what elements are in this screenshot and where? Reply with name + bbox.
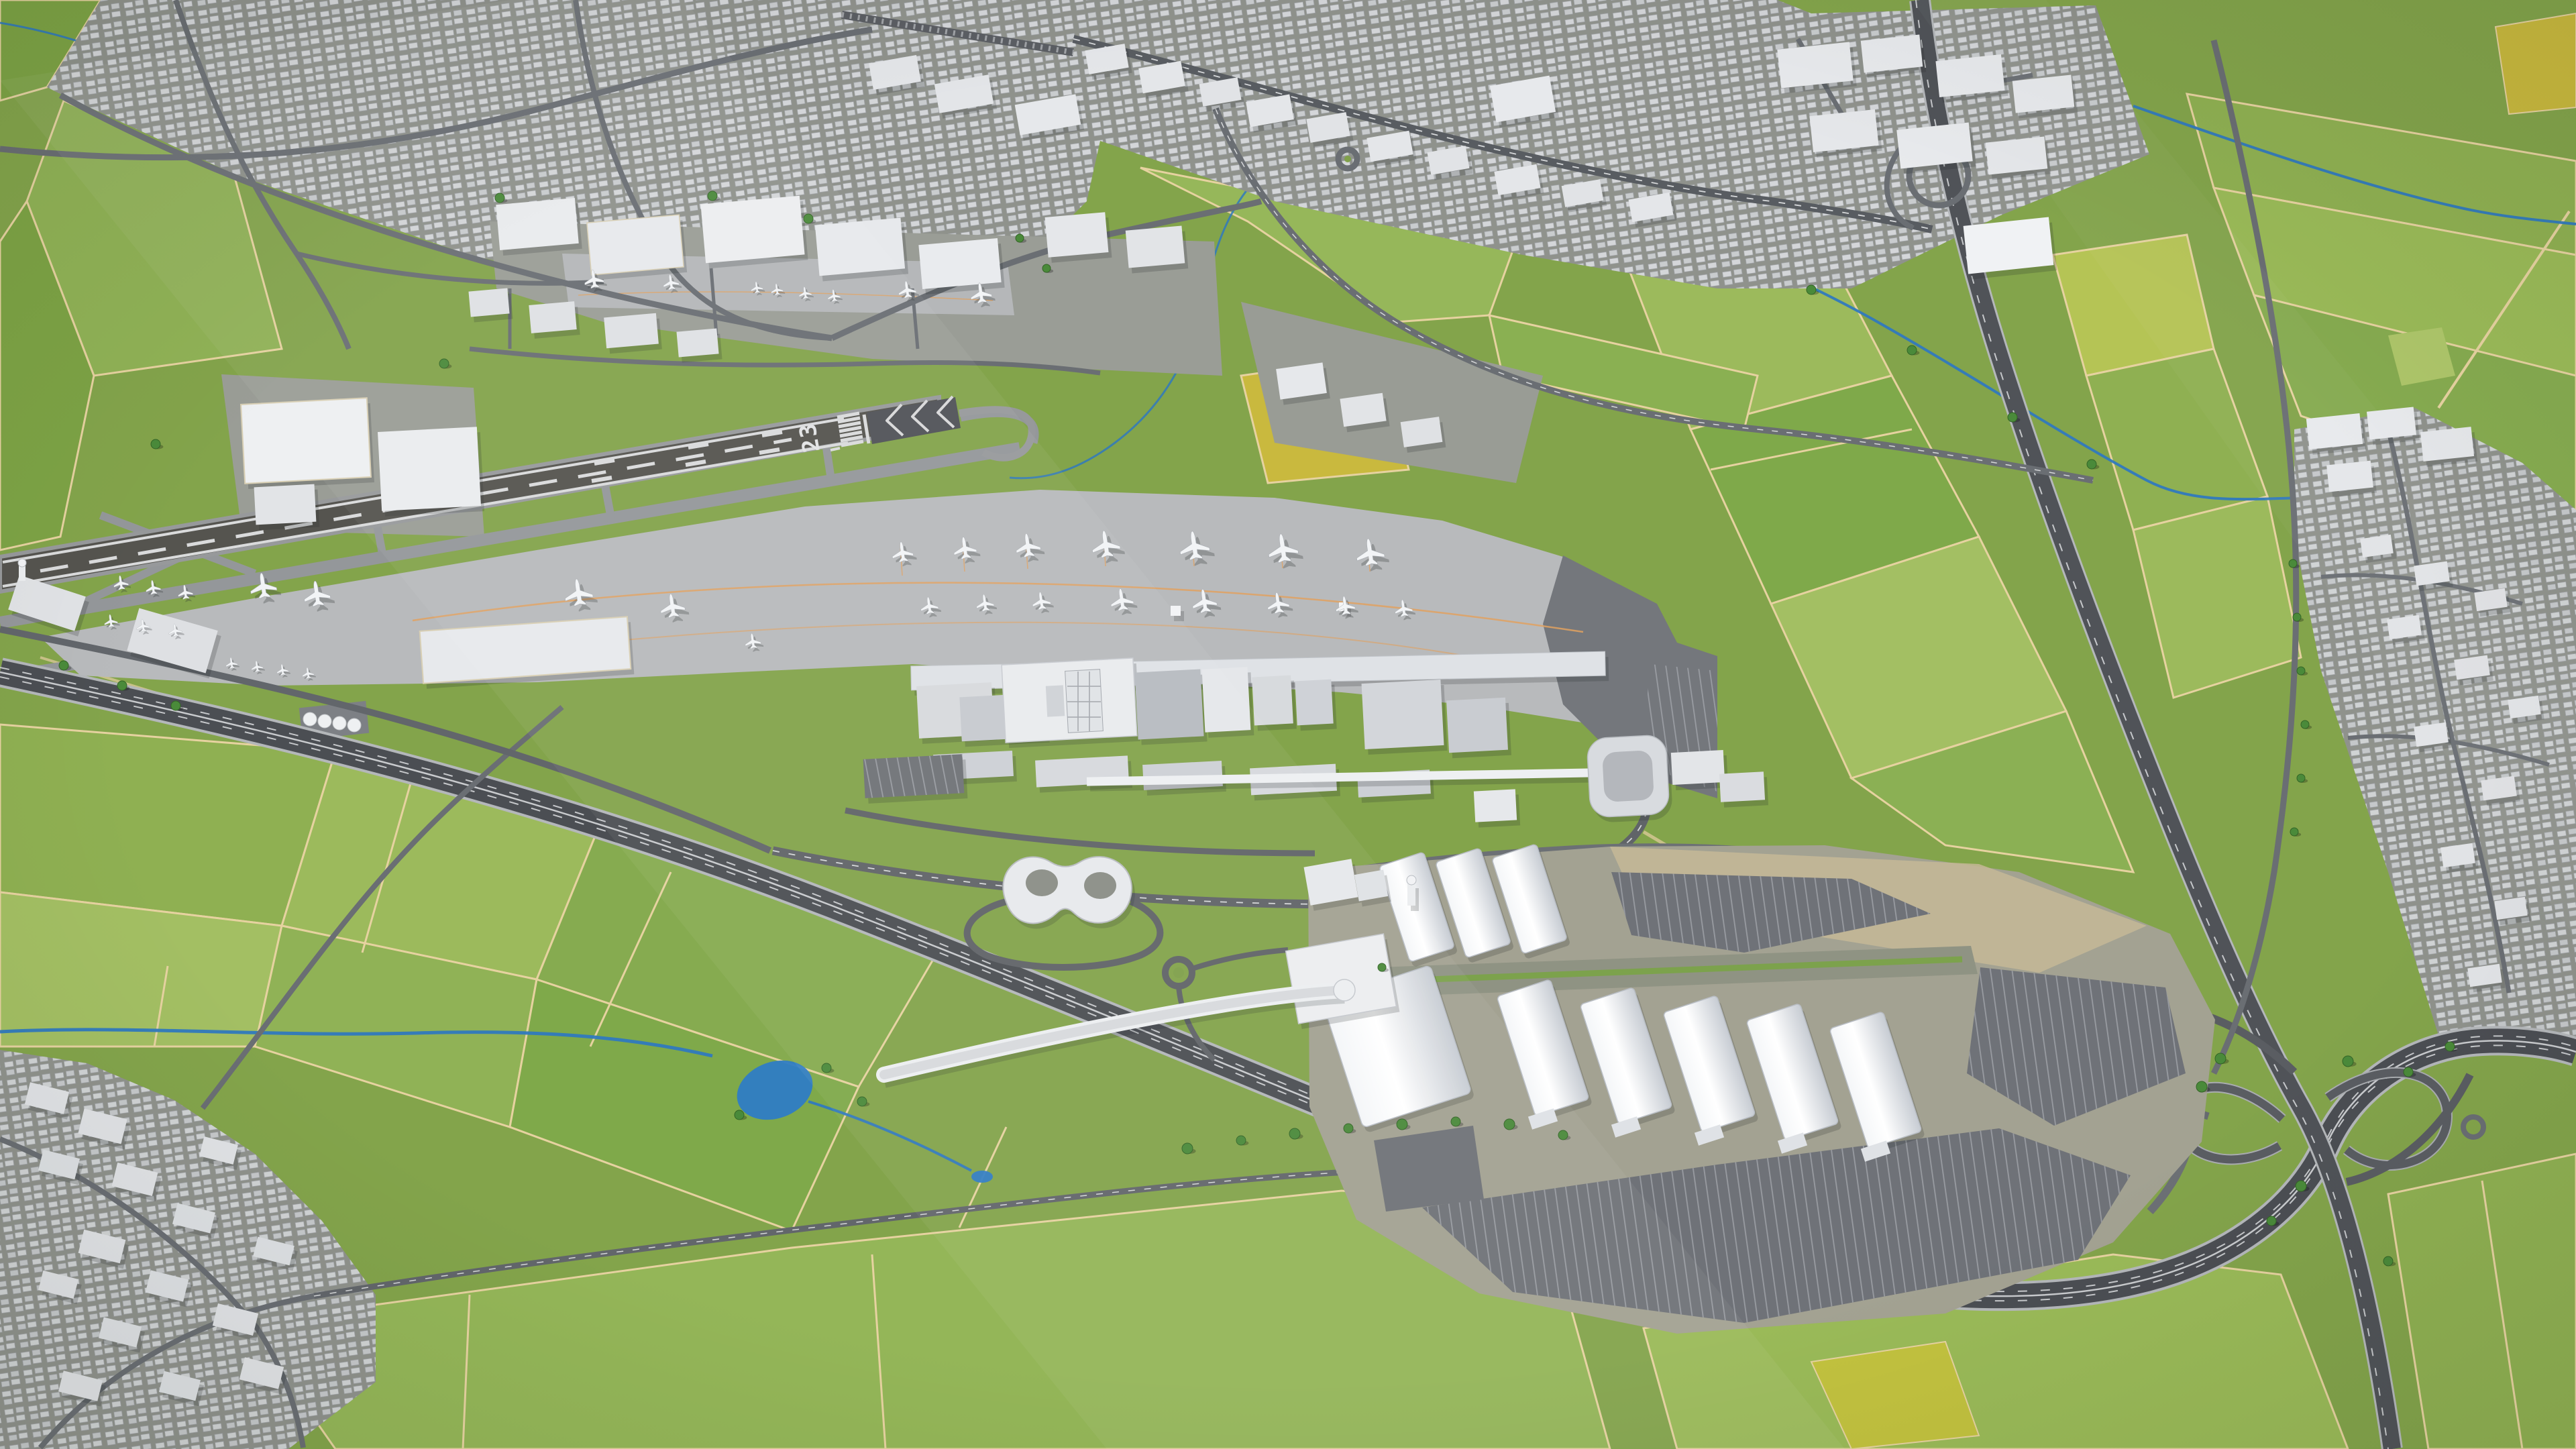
aerial-3d-map: 23 (0, 0, 2576, 1449)
vignette (0, 0, 2576, 1449)
scene-svg: 23 (0, 0, 2576, 1449)
lighting-fx (0, 0, 2576, 1449)
